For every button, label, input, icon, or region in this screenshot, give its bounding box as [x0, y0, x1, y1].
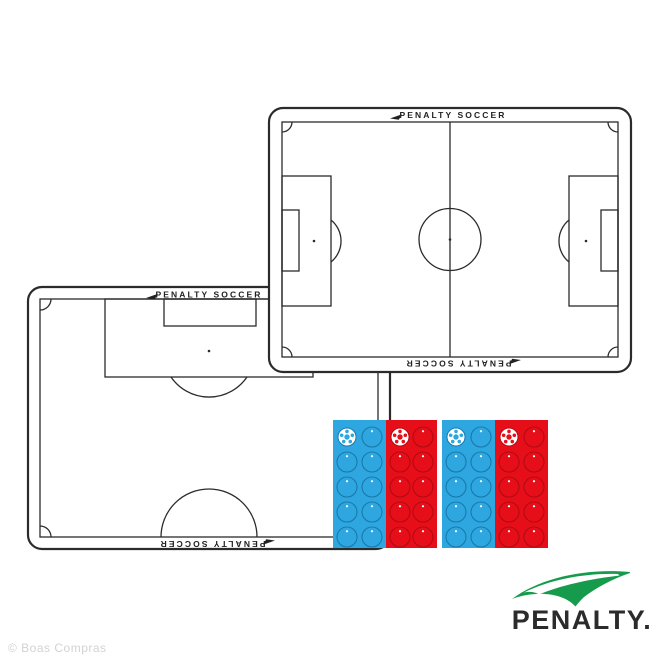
player-magnet: [390, 477, 410, 497]
half-field-board-label-bottom: PENALTY SOCCER: [158, 539, 265, 549]
player-magnet: [337, 452, 357, 472]
product-image: PENALTY SOCCER PENALTY SOCCER: [0, 0, 660, 660]
penalty-logo-text: PENALTY.: [512, 605, 653, 635]
full-field-board: PENALTY SOCCER PENALTY SOCCER: [269, 108, 631, 372]
player-magnet: [446, 527, 466, 547]
player-magnet: [446, 477, 466, 497]
player-magnet: [471, 427, 491, 447]
player-magnet: [413, 452, 433, 472]
player-magnet: [362, 502, 382, 522]
half-field-board-label-top: PENALTY SOCCER: [155, 290, 262, 300]
player-magnet: [499, 502, 519, 522]
magnet-tray-section-red: [386, 420, 437, 548]
player-magnet: [524, 477, 544, 497]
player-magnet: [413, 502, 433, 522]
center-spot: [449, 238, 452, 241]
full-field-board-label-bottom: PENALTY SOCCER: [404, 359, 511, 369]
player-magnet: [362, 477, 382, 497]
player-magnet: [524, 527, 544, 547]
player-magnet: [499, 527, 519, 547]
player-magnet: [499, 452, 519, 472]
magnet-tray-section-red: [495, 420, 548, 548]
player-magnet: [471, 477, 491, 497]
player-magnet: [337, 527, 357, 547]
player-magnet: [337, 477, 357, 497]
player-magnet: [524, 452, 544, 472]
player-magnet: [362, 527, 382, 547]
player-magnet: [413, 477, 433, 497]
soccer-ball-magnet-icon: [500, 428, 518, 446]
magnet-trays: [333, 420, 548, 548]
player-magnet: [524, 427, 544, 447]
penalty-spot: [208, 350, 211, 353]
magnet-tray-section-blue: [442, 420, 495, 548]
player-magnet: [471, 502, 491, 522]
player-magnet: [413, 427, 433, 447]
penalty-spot-left: [313, 240, 316, 243]
player-magnet: [390, 452, 410, 472]
player-magnet: [499, 477, 519, 497]
player-magnet: [362, 427, 382, 447]
penalty-logo: PENALTY.: [512, 571, 653, 635]
watermark: © Boas Compras: [8, 641, 107, 655]
soccer-ball-magnet-icon: [447, 428, 465, 446]
player-magnet: [446, 452, 466, 472]
player-magnet: [471, 452, 491, 472]
penalty-logo-swoosh-icon: [512, 571, 630, 606]
player-magnet: [390, 502, 410, 522]
player-magnet: [471, 527, 491, 547]
penalty-spot-right: [585, 240, 588, 243]
full-field-board-label-top: PENALTY SOCCER: [399, 110, 506, 120]
player-magnet: [524, 502, 544, 522]
player-magnet: [446, 502, 466, 522]
player-magnet: [413, 527, 433, 547]
magnet-tray-section-blue: [333, 420, 386, 548]
player-magnet: [362, 452, 382, 472]
soccer-ball-magnet-icon: [338, 428, 356, 446]
player-magnet: [390, 527, 410, 547]
soccer-ball-magnet-icon: [391, 428, 409, 446]
player-magnet: [337, 502, 357, 522]
tactic-board-illustration: PENALTY SOCCER PENALTY SOCCER: [0, 0, 660, 660]
